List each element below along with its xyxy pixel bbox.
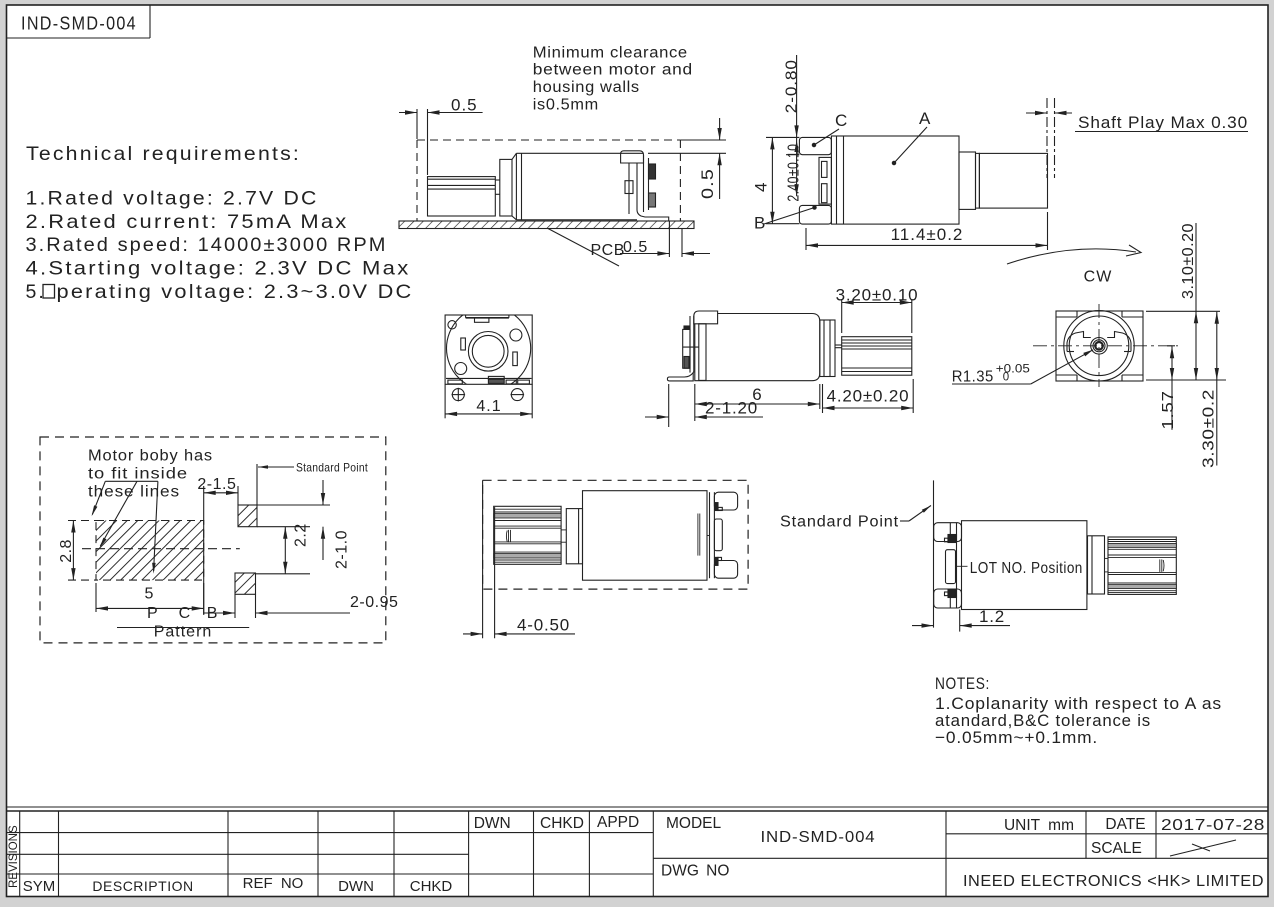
svg-text:0.5: 0.5: [698, 168, 717, 199]
svg-text:2.8: 2.8: [58, 539, 75, 563]
svg-text:REF NO: REF NO: [243, 875, 304, 892]
svg-text:−0.05mm~+0.1mm.: −0.05mm~+0.1mm.: [935, 728, 1098, 747]
svg-text:housing walls: housing walls: [533, 79, 640, 96]
svg-text:SCALE: SCALE: [1091, 840, 1142, 857]
svg-text:11.4±0.2: 11.4±0.2: [891, 225, 964, 244]
svg-text:IND-SMD-004: IND-SMD-004: [21, 14, 137, 34]
svg-text:Minimum clearance: Minimum clearance: [533, 45, 688, 62]
svg-text:NOTES:: NOTES:: [935, 674, 990, 693]
svg-text:4.Starting voltage: 2.3V DC Ma: 4.Starting voltage: 2.3V DC Max: [26, 258, 411, 280]
svg-text:3.30±0.2: 3.30±0.2: [1201, 389, 1218, 468]
svg-text:Shaft Play Max 0.30: Shaft Play Max 0.30: [1078, 114, 1248, 132]
svg-text:B: B: [754, 214, 765, 233]
svg-text:is0.5mm: is0.5mm: [533, 96, 599, 113]
svg-text:2-1.0: 2-1.0: [334, 530, 351, 569]
svg-text:Standard Point: Standard Point: [296, 461, 368, 475]
svg-text:3.Rated speed: 14000±3000 RPM: 3.Rated speed: 14000±3000 RPM: [26, 234, 388, 256]
svg-text:DATE: DATE: [1105, 816, 1145, 833]
svg-text:SYM: SYM: [23, 878, 56, 895]
svg-text:2-0.95: 2-0.95: [350, 594, 398, 611]
svg-text:perating voltage: 2.3~3.0V DC: perating voltage: 2.3~3.0V DC: [57, 281, 414, 303]
svg-text:LOT NO. Position: LOT NO. Position: [970, 560, 1083, 577]
svg-text:PCB: PCB: [591, 242, 625, 259]
svg-text:Standard Point: Standard Point: [780, 514, 899, 531]
svg-text:+0.05: +0.05: [996, 364, 1030, 376]
svg-text:0.5: 0.5: [623, 239, 648, 256]
svg-text:CHKD: CHKD: [410, 878, 453, 895]
svg-text:3.20±0.10: 3.20±0.10: [836, 286, 919, 305]
svg-text:3.10±0.20: 3.10±0.20: [1180, 223, 1197, 299]
svg-text:DWN: DWN: [474, 815, 511, 832]
svg-text:4.20±0.20: 4.20±0.20: [827, 387, 910, 406]
svg-text:2.Rated current: 75mA Max: 2.Rated current: 75mA Max: [26, 211, 349, 233]
svg-text:DWN: DWN: [338, 878, 374, 895]
svg-text:P: P: [147, 605, 158, 622]
svg-text:2-0.80: 2-0.80: [784, 59, 801, 113]
svg-text:A: A: [919, 109, 931, 128]
svg-text:2.40±0.10: 2.40±0.10: [786, 144, 803, 202]
svg-text:MODEL: MODEL: [666, 815, 722, 832]
svg-text:C: C: [179, 605, 191, 622]
svg-text:UNIT mm: UNIT mm: [1004, 817, 1074, 834]
svg-text:Pattern: Pattern: [154, 624, 213, 641]
svg-text:1.Rated voltage: 2.7V DC: 1.Rated voltage: 2.7V DC: [26, 188, 319, 210]
svg-text:4.1: 4.1: [476, 398, 501, 415]
svg-text:1.2: 1.2: [979, 607, 1005, 626]
svg-text:2.2: 2.2: [293, 523, 310, 547]
svg-text:REVISIONS: REVISIONS: [8, 825, 20, 888]
svg-text:to fit inside: to fit inside: [88, 466, 188, 483]
svg-text:CW: CW: [1084, 269, 1113, 286]
svg-text:Motor boby has: Motor boby has: [88, 448, 213, 465]
svg-text:R1.35: R1.35: [952, 369, 994, 386]
svg-text:4-0.50: 4-0.50: [517, 616, 570, 635]
svg-text:2017-07-28: 2017-07-28: [1161, 817, 1265, 834]
svg-text:INEED ELECTRONICS <HK> LIMITED: INEED ELECTRONICS <HK> LIMITED: [963, 873, 1264, 890]
svg-text:between motor and: between motor and: [533, 62, 693, 79]
svg-text:1.57: 1.57: [1160, 391, 1177, 430]
svg-text:APPD: APPD: [597, 814, 639, 831]
svg-text:IND-SMD-004: IND-SMD-004: [761, 829, 876, 846]
svg-text:2-1.20: 2-1.20: [705, 399, 758, 418]
svg-text:0.5: 0.5: [451, 96, 478, 115]
svg-text:5: 5: [145, 586, 154, 603]
svg-text:C: C: [835, 111, 847, 130]
svg-text:0: 0: [1003, 372, 1009, 384]
svg-text:DWG NO: DWG NO: [661, 863, 729, 880]
svg-text:4: 4: [752, 183, 771, 192]
svg-text:2-1.5: 2-1.5: [197, 476, 236, 493]
svg-text:CHKD: CHKD: [540, 815, 584, 832]
svg-text:DESCRIPTION: DESCRIPTION: [92, 878, 193, 894]
svg-text:Technical requirements:: Technical requirements:: [26, 143, 301, 165]
